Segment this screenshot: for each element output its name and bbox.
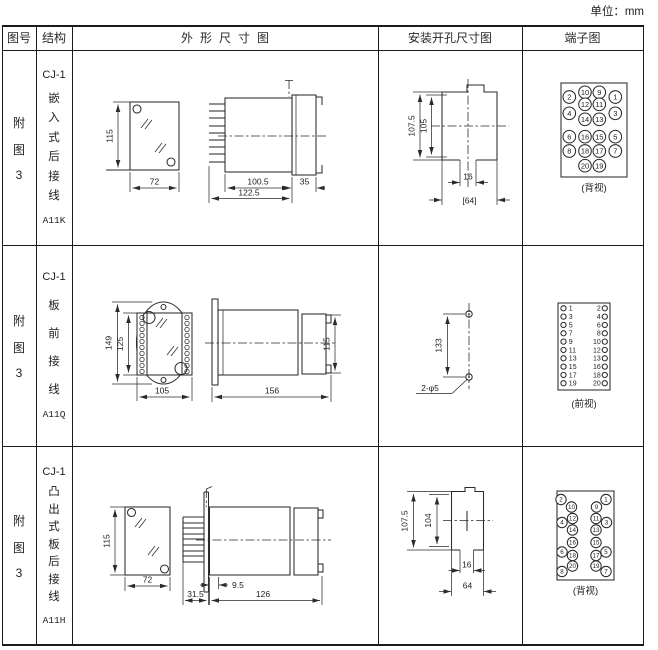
svg-text:8: 8 (567, 147, 571, 156)
svg-text:20: 20 (593, 381, 601, 388)
svg-text:16: 16 (569, 540, 576, 547)
dim-side-height: 115 (322, 337, 332, 351)
manual-page: 单位：mm 图号 结构 外形尺寸图 安装开孔尺寸图 端子图 附 图 3 附 图 … (0, 0, 658, 650)
dim-side-length: 156 (265, 386, 279, 396)
svg-text:3: 3 (605, 520, 609, 527)
svg-text:9: 9 (569, 339, 573, 346)
svg-text:3: 3 (569, 314, 573, 321)
dim-mount-outer-h: 107.5 (407, 115, 417, 137)
svg-text:1: 1 (569, 306, 573, 313)
svg-text:20: 20 (569, 563, 576, 570)
svg-text:9: 9 (595, 504, 599, 511)
svg-text:14: 14 (581, 115, 589, 124)
dim-body-length3: 126 (256, 589, 270, 599)
dim-total-length: 122.5 (238, 188, 260, 198)
svg-text:12: 12 (593, 347, 601, 354)
svg-text:5: 5 (569, 322, 573, 329)
svg-text:7: 7 (613, 147, 617, 156)
svg-text:13: 13 (593, 527, 600, 534)
svg-text:14: 14 (569, 527, 576, 534)
svg-text:4: 4 (567, 109, 571, 118)
terminal-drawing-a11h: 2110941211314131615618175201987 (背视) (556, 491, 614, 597)
svg-text:18: 18 (593, 372, 601, 379)
dim-mount-outer-h3: 107.5 (400, 510, 410, 532)
svg-text:9: 9 (597, 88, 601, 97)
svg-text:5: 5 (613, 132, 617, 141)
svg-text:13: 13 (569, 356, 577, 363)
svg-text:13: 13 (593, 356, 601, 363)
svg-text:4: 4 (560, 520, 564, 527)
dim-front-height: 115 (105, 129, 115, 143)
outline-drawing-a11q: 149 125 105 115 156 (104, 299, 342, 402)
svg-text:19: 19 (569, 381, 577, 388)
terminal-view-label-row1: (背视) (581, 182, 606, 194)
dim-mount-total-w: [64] (462, 196, 476, 206)
svg-text:8: 8 (560, 569, 564, 576)
svg-text:3: 3 (613, 109, 617, 118)
svg-text:2: 2 (559, 497, 563, 504)
dim-front-height3: 115 (102, 534, 112, 548)
svg-text:16: 16 (581, 132, 589, 141)
svg-text:7: 7 (569, 331, 573, 338)
svg-text:19: 19 (593, 563, 600, 570)
mounting-drawing-a11k: 107.5 105 16 [64] (407, 79, 511, 206)
svg-text:2: 2 (567, 93, 571, 102)
dim-front-width2: 105 (155, 386, 169, 396)
svg-text:12: 12 (581, 100, 589, 109)
dim-hole-spacing: 133 (434, 338, 444, 352)
dim-flange-depth: 35 (300, 177, 310, 187)
svg-text:4: 4 (597, 314, 601, 321)
terminal-circles-a11q: 1234567891011121313151617181920 (561, 306, 608, 388)
svg-text:15: 15 (593, 540, 600, 547)
svg-text:11: 11 (569, 347, 576, 354)
svg-text:16: 16 (593, 364, 601, 371)
svg-text:13: 13 (595, 115, 603, 124)
svg-text:17: 17 (593, 553, 600, 560)
svg-text:6: 6 (567, 132, 571, 141)
dim-front-width3: 72 (143, 575, 153, 585)
svg-text:10: 10 (568, 504, 575, 511)
svg-text:11: 11 (595, 100, 603, 109)
dim-body-height: 125 (115, 337, 125, 351)
terminal-circles-a11k: 2109141211314136161558181772019 (563, 86, 622, 172)
dim-holes-label: 2-φ5 (421, 383, 439, 393)
mounting-drawing-a11q: 133 2-φ5 (416, 303, 472, 394)
svg-text:12: 12 (569, 516, 576, 523)
svg-text:1: 1 (613, 93, 617, 102)
svg-text:8: 8 (597, 331, 601, 338)
svg-text:17: 17 (569, 372, 577, 379)
dim-mount-inner-h: 105 (419, 119, 429, 133)
dim-pin-depth: 31.5 (187, 589, 204, 599)
svg-text:11: 11 (593, 516, 600, 523)
mounting-drawing-a11h: 107.5 104 16 64 (400, 488, 497, 597)
dim-mount-slot-w: 16 (463, 172, 473, 182)
dim-body-length: 100.5 (247, 177, 269, 187)
svg-text:18: 18 (581, 147, 589, 156)
svg-text:5: 5 (604, 549, 608, 556)
outline-drawing-a11k: 115 72 (105, 80, 328, 203)
dim-offset: 9.5 (232, 580, 244, 590)
svg-text:15: 15 (595, 132, 603, 141)
outline-drawing-a11h: 115 72 (102, 487, 332, 606)
dim-flange-height: 149 (104, 336, 114, 350)
dim-front-width: 72 (150, 177, 160, 187)
svg-text:2: 2 (597, 306, 601, 313)
dim-mount-slot-w3: 16 (462, 560, 472, 570)
svg-text:17: 17 (595, 147, 603, 156)
svg-text:6: 6 (597, 322, 601, 329)
svg-text:10: 10 (581, 88, 589, 97)
dim-mount-inner-h3: 104 (423, 513, 433, 527)
svg-text:18: 18 (569, 553, 576, 560)
svg-text:6: 6 (560, 549, 564, 556)
terminal-view-label-row2: (前视) (571, 398, 596, 410)
terminal-drawing-a11k: 2109141211314136161558181772019 (背视) (561, 83, 627, 194)
svg-text:15: 15 (569, 364, 577, 371)
svg-text:20: 20 (581, 161, 589, 170)
drawings-layer: 115 72 (0, 0, 658, 650)
dim-mount-total-w3: 64 (463, 581, 473, 591)
svg-text:10: 10 (593, 339, 601, 346)
svg-text:1: 1 (604, 497, 608, 504)
svg-text:7: 7 (604, 569, 608, 576)
terminal-drawing-a11q: 1234567891011121313151617181920 (前视) (558, 303, 610, 410)
svg-text:19: 19 (595, 161, 603, 170)
terminal-view-label-row3: (背视) (573, 585, 598, 597)
terminal-circles-a11h: 2110941211314131615618175201987 (556, 494, 612, 576)
